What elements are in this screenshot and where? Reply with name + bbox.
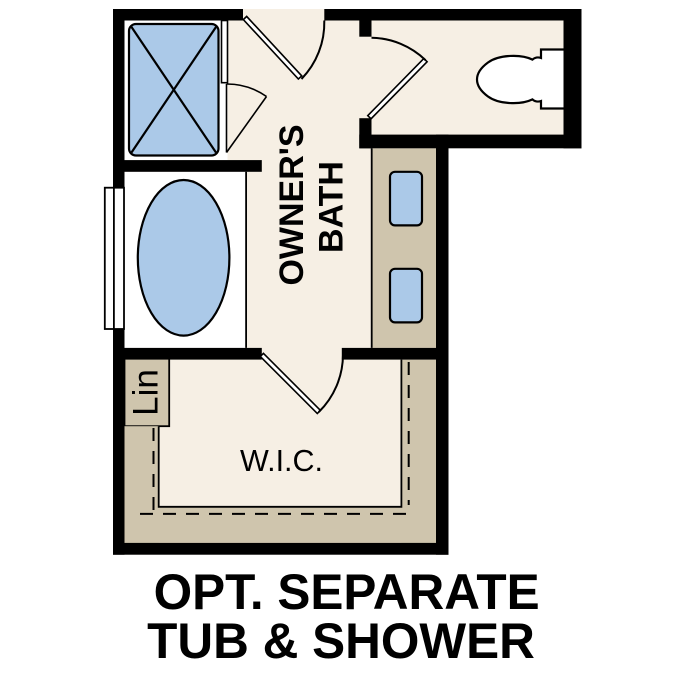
svg-text:Lin: Lin	[127, 369, 166, 416]
svg-text:OPT. SEPARATE: OPT. SEPARATE	[154, 564, 540, 620]
svg-text:OWNER'S: OWNER'S	[273, 124, 311, 285]
svg-text:BATH: BATH	[312, 161, 350, 253]
svg-text:W.I.C.: W.I.C.	[240, 444, 323, 478]
svg-text:TUB & SHOWER: TUB & SHOWER	[147, 613, 535, 669]
